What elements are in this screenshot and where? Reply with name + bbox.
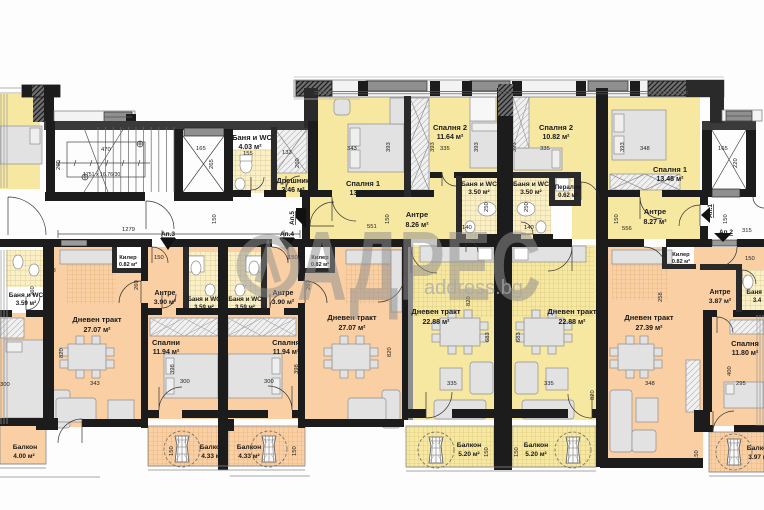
svg-text:Дневен тракт: Дневен тракт [72,315,122,324]
svg-text:4.33 м²: 4.33 м² [201,453,223,460]
svg-text:Спалня 2: Спалня 2 [539,123,573,132]
svg-text:4.33 м²: 4.33 м² [238,453,260,460]
svg-text:155: 155 [243,151,253,157]
svg-text:150: 150 [723,214,729,224]
svg-text:Антре: Антре [644,207,666,216]
svg-text:260: 260 [56,160,62,170]
svg-text:343: 343 [347,146,357,152]
svg-text:265: 265 [209,159,215,169]
svg-text:Дрешник: Дрешник [276,176,309,185]
svg-text:3.97 м²: 3.97 м² [748,454,764,461]
svg-text:150: 150 [614,214,620,224]
svg-text:Спалня 1: Спалня 1 [653,165,687,174]
svg-text:150: 150 [154,255,164,261]
svg-text:Ап.4: Ап.4 [280,231,294,238]
svg-text:3.50 м²: 3.50 м² [468,189,490,196]
svg-text:260: 260 [295,158,301,168]
svg-text:8.27 м²: 8.27 м² [643,219,667,226]
svg-text:Баня и WC: Баня и WC [461,181,497,188]
svg-text:Ап.1: Ап.1 [707,204,714,218]
svg-text:393: 393 [474,142,480,152]
svg-text:4.03 м²: 4.03 м² [238,144,262,151]
svg-text:27.39 м²: 27.39 м² [636,325,664,332]
svg-text:150: 150 [694,450,700,460]
svg-text:820: 820 [387,347,393,357]
svg-text:335: 335 [440,146,450,152]
svg-text:295: 295 [736,381,746,387]
svg-text:Спалня 1: Спалня 1 [346,179,380,188]
svg-text:27.07 м²: 27.07 м² [339,325,367,332]
svg-text:300: 300 [180,379,190,385]
svg-text:Дневен тракт: Дневен тракт [547,307,597,316]
svg-text:13.48 м²: 13.48 м² [657,176,685,183]
svg-text:348: 348 [645,381,655,387]
svg-text:Антре: Антре [155,290,176,297]
svg-text:Килер: Килер [672,252,690,258]
svg-text:АДРЕС: АДРЕС [297,211,541,321]
svg-text:150: 150 [292,446,298,456]
svg-text:820: 820 [59,348,65,358]
svg-text:393: 393 [512,142,518,152]
svg-text:Балкон: Балкон [524,442,549,449]
svg-text:0.82 м²: 0.82 м² [672,258,690,265]
svg-text:Баня и WC: Баня и WC [232,133,272,142]
svg-text:300: 300 [264,379,274,385]
svg-text:Спалня 2: Спалня 2 [433,123,467,132]
svg-text:335: 335 [540,146,550,152]
svg-text:Антре: Антре [710,289,731,296]
svg-text:393: 393 [430,142,436,152]
svg-text:150: 150 [745,256,755,262]
svg-text:1751 x 16.76/30: 1751 x 16.76/30 [83,172,120,178]
svg-text:393: 393 [386,142,392,152]
svg-text:11.64 м²: 11.64 м² [437,134,464,141]
svg-text:address.bg: address.bg [424,277,523,299]
svg-text:27.07 м²: 27.07 м² [84,327,112,334]
svg-text:138: 138 [46,268,56,274]
svg-text:3.59 м²: 3.59 м² [235,304,255,311]
svg-text:Ап.3: Ап.3 [161,231,175,238]
svg-text:3.46 м²: 3.46 м² [281,187,305,194]
svg-text:3.87 м²: 3.87 м² [709,298,732,305]
svg-text:220: 220 [733,158,739,168]
svg-text:683: 683 [516,332,522,342]
svg-text:556: 556 [622,226,632,232]
svg-text:Ап.5: Ап.5 [289,211,296,225]
svg-text:Балкон: Балкон [237,444,262,451]
svg-text:Балкон: Балкон [13,444,38,451]
svg-text:400: 400 [727,366,733,376]
svg-text:Спалня: Спалня [272,338,300,347]
svg-text:348: 348 [640,146,650,152]
svg-text:260: 260 [134,280,140,290]
svg-text:150: 150 [212,214,218,224]
svg-text:Баня и WC: Баня и WC [513,181,549,188]
svg-text:3.90 м²: 3.90 м² [272,299,295,306]
svg-text:13.48 м²: 13.48 м² [350,190,378,197]
svg-text:335: 335 [447,381,457,387]
svg-text:Дневен тракт: Дневен тракт [624,313,674,322]
svg-text:150: 150 [514,447,520,457]
svg-text:Килер: Килер [119,255,137,261]
svg-text:150: 150 [484,447,490,457]
svg-text:470: 470 [101,147,111,153]
svg-text:Перално: Перално [555,184,582,191]
svg-text:Баня и WC: Баня и WC [9,292,44,299]
svg-text:258: 258 [658,292,664,302]
svg-text:Ап.2: Ап.2 [719,229,733,236]
svg-text:343: 343 [90,381,100,387]
svg-text:398: 398 [294,364,300,374]
svg-text:398: 398 [170,364,176,374]
svg-text:820: 820 [590,390,596,400]
svg-text:Балкон: Балкон [457,442,482,449]
svg-text:150: 150 [169,446,175,456]
svg-text:4.00 м²: 4.00 м² [13,453,35,460]
svg-text:315: 315 [742,228,752,234]
svg-text:165: 165 [196,146,206,152]
svg-text:3.59 м²: 3.59 м² [194,304,214,311]
svg-text:10.82 м²: 10.82 м² [543,134,571,141]
svg-text:Спалня: Спалня [731,339,759,348]
svg-text:0.82 м²: 0.82 м² [119,261,137,268]
svg-text:Балкон: Балкон [200,444,225,451]
svg-text:22.88 м²: 22.88 м² [559,319,587,326]
svg-text:3.90 м²: 3.90 м² [154,299,177,306]
svg-text:393: 393 [620,142,626,152]
svg-text:5.20 м²: 5.20 м² [525,451,547,458]
svg-text:Баня и: Баня и [746,289,764,296]
svg-text:Балкон: Балкон [747,445,764,452]
svg-text:3.50 м²: 3.50 м² [520,189,542,196]
svg-text:5.20 м²: 5.20 м² [458,451,480,458]
svg-text:11.94 м²: 11.94 м² [273,349,300,356]
svg-text:3.59 м²: 3.59 м² [16,300,36,307]
svg-text:Спални: Спални [152,338,180,347]
svg-text:683: 683 [485,332,491,342]
svg-text:3.4: 3.4 [753,298,762,304]
svg-text:Баня и WC: Баня и WC [228,296,262,303]
svg-text:260: 260 [30,286,36,296]
svg-text:0.62 м²: 0.62 м² [558,192,578,199]
svg-text:165: 165 [718,146,728,152]
svg-text:300: 300 [0,382,10,388]
svg-text:335: 335 [544,381,554,387]
svg-text:11.94 м²: 11.94 м² [153,349,180,356]
svg-text:133: 133 [282,150,292,156]
svg-text:1279: 1279 [122,227,135,233]
svg-text:Баня и WC: Баня и WC [187,296,221,303]
svg-text:11.80 м²: 11.80 м² [732,350,759,357]
